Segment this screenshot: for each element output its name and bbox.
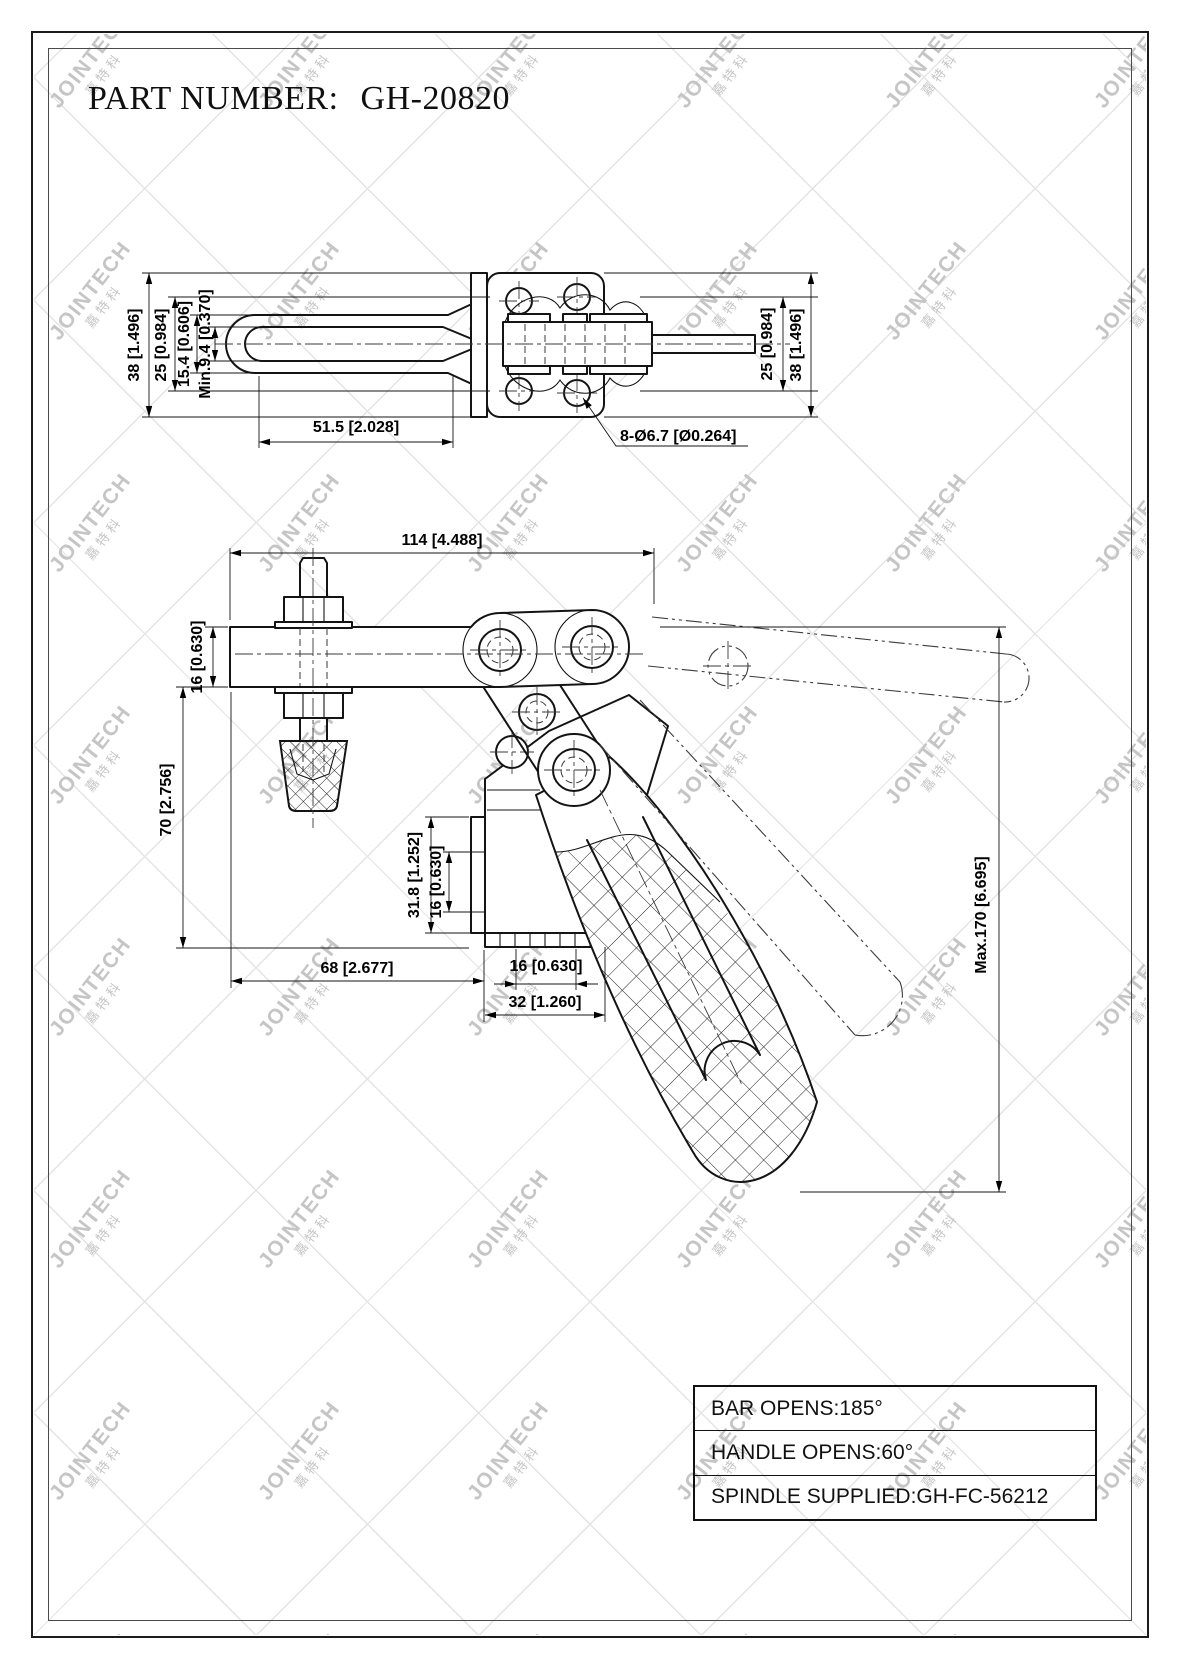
dim-label: 68 [2.677] xyxy=(321,960,394,977)
dim-label: 38 [1.496] xyxy=(788,309,805,382)
dim-label: 32 [1.260] xyxy=(509,994,582,1011)
spindle-shaft-lower xyxy=(300,718,327,741)
spec-table: BAR OPENS:185° HANDLE OPENS:60° SPINDLE … xyxy=(693,1385,1097,1521)
spindle-shaft-top xyxy=(300,558,327,597)
rubber-pressure-tip xyxy=(280,741,347,811)
spec-row-bar-opens: BAR OPENS:185° xyxy=(695,1387,1095,1430)
dim-label: 25 [0.984] xyxy=(153,309,170,382)
part-number-value: GH-20820 xyxy=(361,80,510,117)
dim-label: 31.8 [1.252] xyxy=(406,832,423,918)
drawing-sheet: JOINTECH嘉特科JOINTECH嘉特科JOINTECH嘉特科JOINTEC… xyxy=(0,0,1180,1669)
dim-label: 114 [4.488] xyxy=(402,532,483,549)
spindle-nut-lower xyxy=(284,693,343,718)
side-view: 114 [4.488] 16 [0.630] 70 [2.756] 31.8 [… xyxy=(158,532,1029,1230)
base-flange-edge xyxy=(471,273,487,417)
part-number-label: PART NUMBER: xyxy=(88,80,339,117)
spindle-assembly xyxy=(275,548,352,828)
spindle-washer-upper xyxy=(275,622,352,628)
dim-label: 51.5 [2.028] xyxy=(313,419,399,436)
base-side-flange xyxy=(471,817,485,933)
spec-row-handle-opens: HANDLE OPENS:60° xyxy=(695,1430,1095,1474)
dim-label: 16 [0.630] xyxy=(510,958,583,975)
dim-label: 70 [2.756] xyxy=(158,764,175,837)
dim-label: Max.170 [6.695] xyxy=(973,856,990,973)
dim-label: 38 [1.496] xyxy=(126,309,143,382)
dim-label: 16 [0.630] xyxy=(189,621,206,694)
page-title: PART NUMBER:GH-20820 xyxy=(88,80,510,118)
spec-row-spindle-supplied: SPINDLE SUPPLIED:GH-FC-56212 xyxy=(695,1475,1095,1519)
dim-label: 15.4 [0.606] xyxy=(176,301,193,387)
dim-label: 16 [0.630] xyxy=(428,846,445,919)
dim-label: Min.9.4 [0.370] xyxy=(197,289,214,398)
dim-label: 25 [0.984] xyxy=(759,308,776,381)
dim-label: 8-Ø6.7 [Ø0.264] xyxy=(620,428,737,445)
top-view: 38 [1.496] 25 [0.984] 15.4 [0.606] Min.9… xyxy=(126,273,818,448)
spindle-nut-upper xyxy=(284,597,343,622)
